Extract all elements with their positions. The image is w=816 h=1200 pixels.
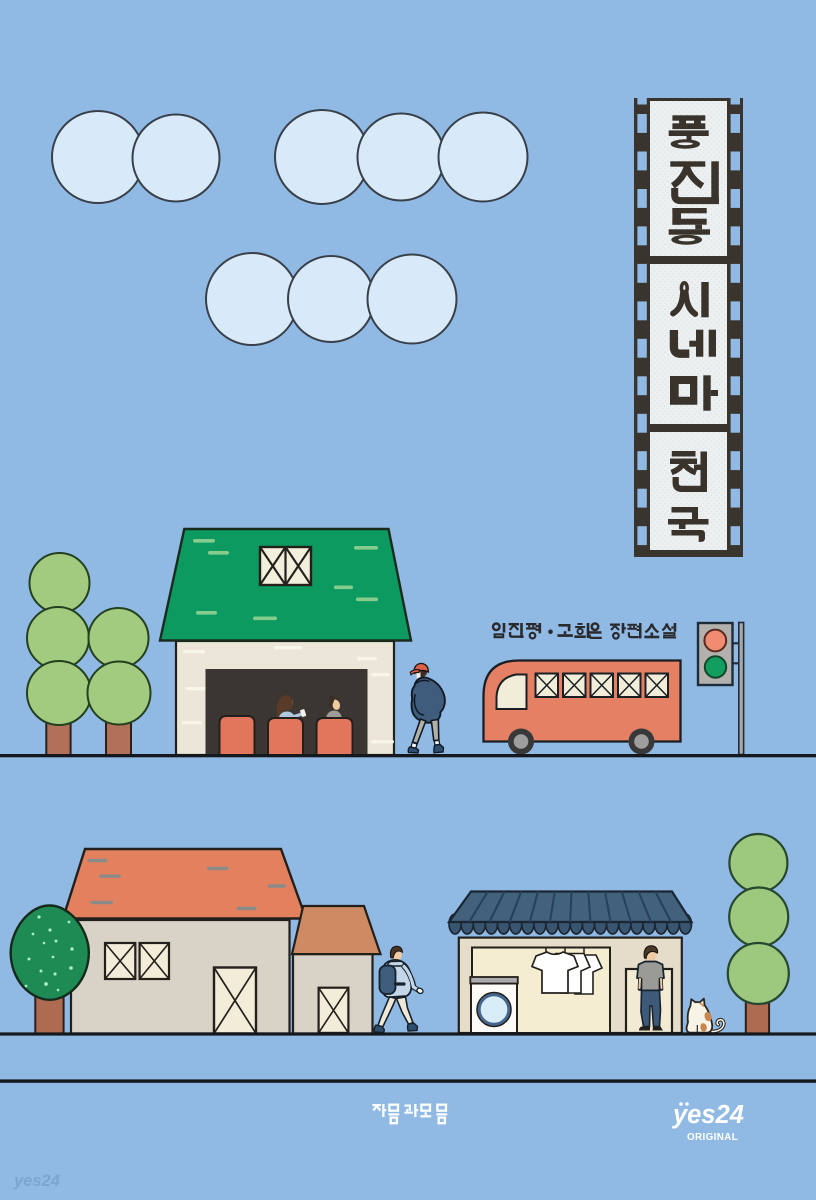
svg-text:yes24: yes24	[13, 1172, 60, 1190]
svg-text:ORIGINAL: ORIGINAL	[687, 1132, 738, 1143]
